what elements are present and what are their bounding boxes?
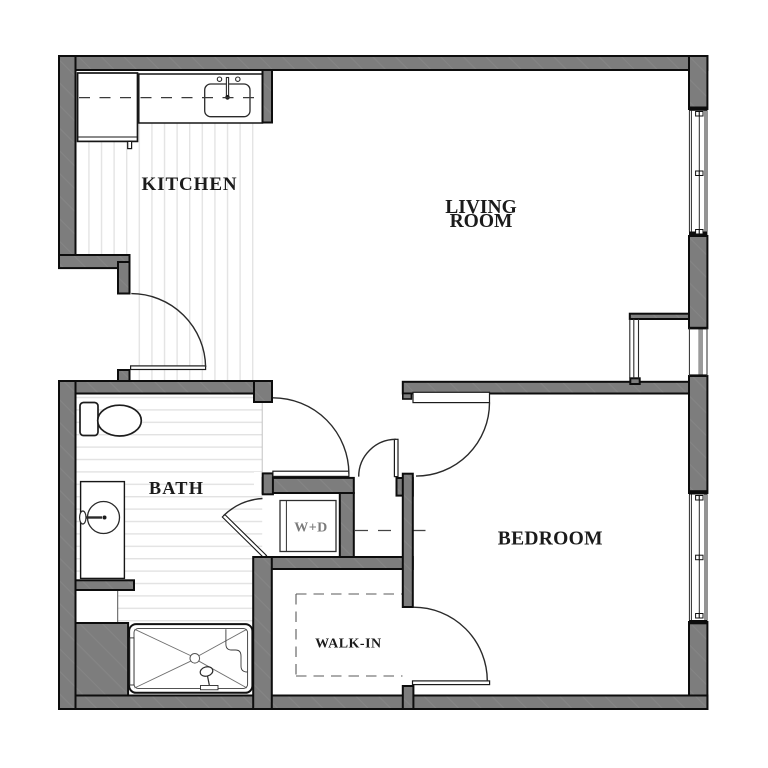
svg-text:ROOM: ROOM xyxy=(450,211,513,232)
svg-text:WALK-IN: WALK-IN xyxy=(315,636,382,651)
svg-text:BEDROOM: BEDROOM xyxy=(498,529,603,550)
svg-text:KITCHEN: KITCHEN xyxy=(141,174,237,195)
svg-text:BATH: BATH xyxy=(149,478,204,498)
svg-text:W+D: W+D xyxy=(294,521,328,536)
